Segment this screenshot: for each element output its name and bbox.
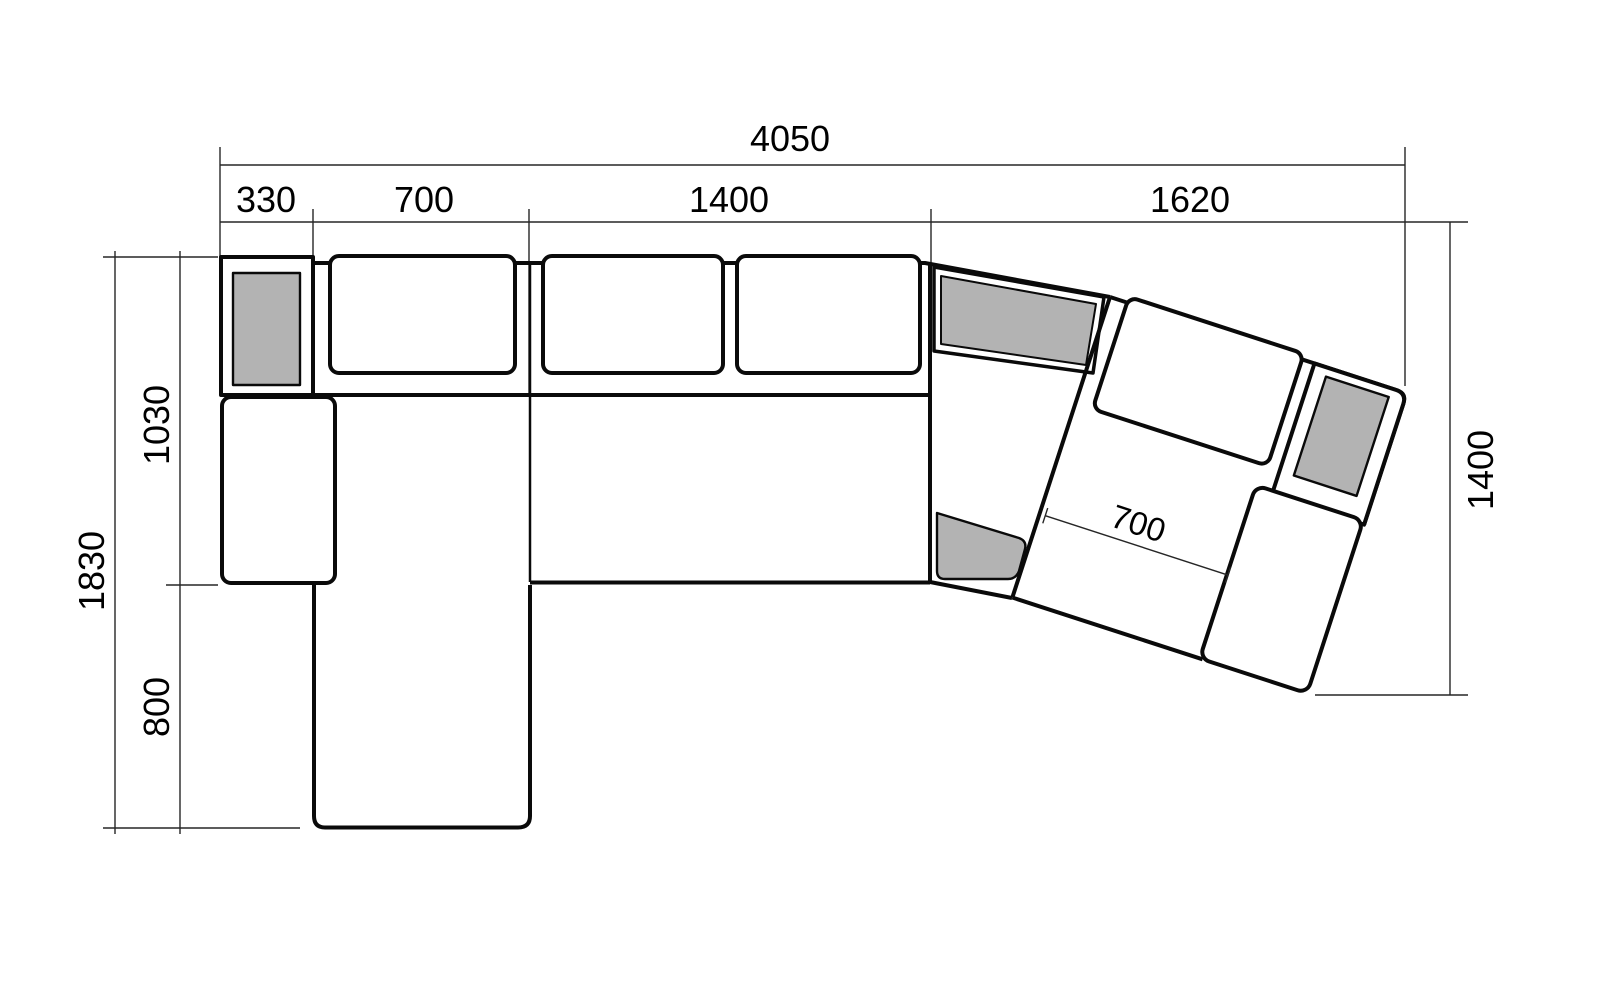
dim-label-right-extent: 1400 bbox=[1460, 430, 1501, 510]
wedge-front-edge bbox=[930, 582, 1012, 598]
sofa-dimension-drawing: 4050 330 700 1400 1620 1830 1030 800 140… bbox=[0, 0, 1600, 1001]
dim-label-segment-1400: 1400 bbox=[689, 179, 769, 220]
dim-label-overall-width: 4050 bbox=[750, 118, 830, 159]
backrest-cushion-1 bbox=[330, 256, 515, 373]
wedge-seat-cushion-gray bbox=[937, 513, 1025, 579]
right-arm-body bbox=[1200, 485, 1364, 693]
dim-label-segment-1620: 1620 bbox=[1150, 179, 1230, 220]
chaise-extension bbox=[314, 585, 530, 828]
left-armrest-cushion bbox=[233, 273, 300, 385]
dim-label-depth-total: 1830 bbox=[71, 531, 112, 611]
sofa-corner-wedge bbox=[930, 267, 1104, 598]
dim-label-segment-700: 700 bbox=[394, 179, 454, 220]
dim-label-depth-lower: 800 bbox=[136, 677, 177, 737]
dim-label-angled-seat-width: 700 bbox=[1107, 497, 1171, 549]
left-arm-body bbox=[222, 397, 335, 583]
dim-label-depth-upper: 1030 bbox=[136, 385, 177, 465]
angled-backrest-cushion bbox=[1093, 297, 1304, 466]
backrest-cushion-3 bbox=[737, 256, 920, 373]
backrest-cushion-2 bbox=[543, 256, 723, 373]
dim-label-segment-330: 330 bbox=[236, 179, 296, 220]
angled-seat-front-edge bbox=[1012, 598, 1202, 660]
drawing-canvas: 4050 330 700 1400 1620 1830 1030 800 140… bbox=[0, 0, 1600, 1001]
